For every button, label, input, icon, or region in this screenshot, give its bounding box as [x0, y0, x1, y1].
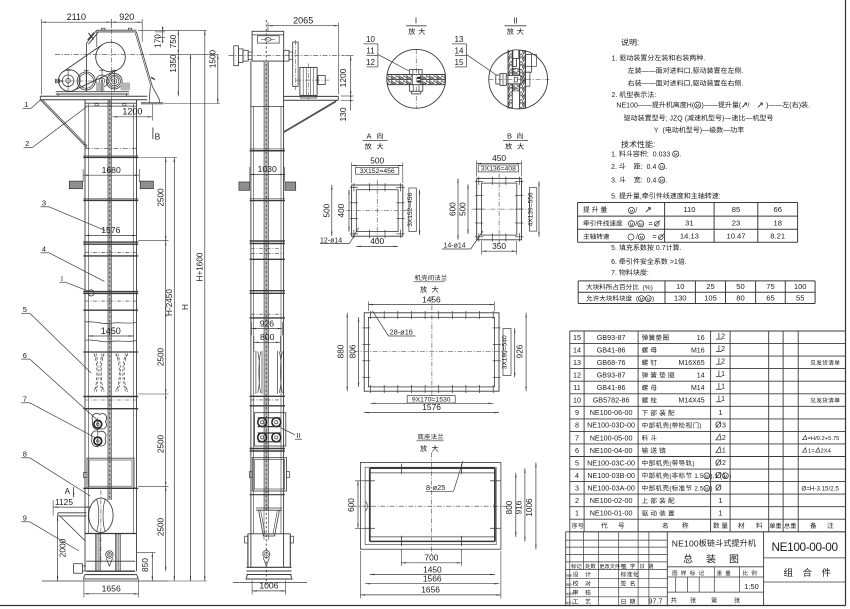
svg-text:18: 18 — [773, 218, 781, 227]
svg-text:2500: 2500 — [156, 517, 165, 536]
svg-text:800: 800 — [260, 332, 275, 342]
svg-text:/: / — [636, 234, 638, 241]
svg-text:3X180=540: 3X180=540 — [502, 335, 509, 369]
svg-text::: : — [637, 38, 639, 47]
svg-text:): ) — [652, 296, 654, 303]
svg-text:GB41-86: GB41-86 — [597, 345, 626, 354]
svg-text:400: 400 — [337, 203, 346, 217]
svg-text:2.: 2. — [611, 164, 619, 171]
svg-text:1456: 1456 — [422, 294, 441, 304]
svg-text:—: — — [723, 127, 730, 134]
svg-text:4X139=556: 4X139=556 — [528, 192, 535, 226]
svg-text:H-2450: H-2450 — [165, 289, 174, 316]
svg-text:1450: 1450 — [101, 326, 121, 336]
svg-text:2: 2 — [25, 139, 29, 148]
svg-text:II: II — [513, 17, 517, 26]
svg-text::: : — [653, 140, 655, 149]
svg-text:NE100-03A-00: NE100-03A-00 — [587, 484, 635, 493]
svg-text:; JZQ (: ; JZQ ( — [666, 115, 688, 122]
svg-text:1680: 1680 — [102, 165, 121, 175]
svg-text:H(: H( — [687, 102, 695, 109]
svg-text:M: M — [674, 152, 678, 157]
svg-text:7: 7 — [23, 395, 27, 404]
svg-text:1006: 1006 — [525, 498, 534, 517]
svg-text:97.7: 97.7 — [649, 597, 663, 606]
svg-text:850: 850 — [140, 558, 150, 572]
svg-text:1350: 1350 — [169, 54, 178, 73]
svg-text:)——: )—— — [702, 102, 718, 109]
svg-text:.: . — [680, 151, 682, 158]
svg-text:14: 14 — [697, 373, 705, 380]
svg-text:8-ø25: 8-ø25 — [426, 483, 445, 492]
svg-text:7: 7 — [575, 433, 579, 442]
svg-text:Ø=H-3.15/2.5: Ø=H-3.15/2.5 — [802, 485, 840, 492]
svg-text:1030: 1030 — [258, 164, 277, 174]
svg-text:M: M — [639, 222, 643, 227]
svg-text:0.7: 0.7 — [656, 245, 666, 252]
svg-text:.: . — [666, 164, 668, 171]
svg-text:14: 14 — [573, 345, 581, 354]
svg-text:): ) — [710, 486, 712, 493]
svg-text:50: 50 — [736, 282, 744, 291]
svg-text:.: . — [685, 259, 687, 266]
svg-text:M: M — [696, 103, 700, 108]
svg-text:2500: 2500 — [156, 188, 165, 207]
svg-text:10: 10 — [573, 396, 581, 405]
svg-text:NE100-00-00: NE100-00-00 — [772, 540, 839, 554]
svg-text:Ø: Ø — [715, 482, 722, 492]
svg-text:2: 2 — [722, 460, 726, 467]
svg-text:11: 11 — [366, 46, 375, 55]
svg-text:M: M — [660, 165, 664, 170]
svg-text:: 0.033: : 0.033 — [647, 151, 672, 158]
svg-text:2: 2 — [575, 496, 579, 505]
svg-text:1.: 1. — [611, 151, 619, 158]
svg-text:): ) — [729, 473, 731, 480]
svg-text:450: 450 — [492, 153, 506, 163]
svg-text:1.: 1. — [612, 55, 620, 62]
svg-text:926: 926 — [515, 344, 524, 358]
svg-text:1: 1 — [722, 447, 726, 454]
svg-text:Ø: Ø — [715, 470, 722, 480]
svg-text:13: 13 — [573, 358, 581, 367]
svg-text:2: 2 — [721, 359, 725, 366]
svg-text:Y (: Y ( — [654, 127, 666, 134]
svg-text:.: . — [742, 68, 744, 75]
svg-text:85: 85 — [732, 205, 740, 214]
svg-text:10: 10 — [366, 35, 375, 44]
svg-text:1: 1 — [24, 100, 28, 109]
svg-text:B: B — [507, 132, 512, 141]
svg-text:——: —— — [642, 81, 656, 88]
svg-text:3: 3 — [42, 199, 46, 208]
svg-text:.: . — [680, 245, 682, 252]
svg-text::: : — [654, 92, 656, 99]
svg-text:800: 800 — [505, 500, 514, 514]
svg-text:): ) — [699, 423, 701, 430]
svg-text:1006: 1006 — [259, 581, 278, 591]
svg-text:.: . — [808, 102, 810, 109]
svg-text:Ø: Ø — [715, 457, 722, 467]
svg-text:23: 23 — [732, 218, 740, 227]
svg-text:16: 16 — [697, 335, 705, 342]
svg-text:M: M — [705, 474, 709, 479]
svg-text:1: 1 — [721, 371, 725, 378]
svg-text:105: 105 — [704, 294, 717, 303]
svg-text:M14X45: M14X45 — [679, 398, 705, 405]
svg-text:9: 9 — [575, 408, 579, 417]
svg-text:1656: 1656 — [102, 584, 121, 594]
svg-text:15: 15 — [455, 58, 464, 67]
svg-text:13: 13 — [455, 35, 464, 44]
svg-text:1576: 1576 — [422, 402, 441, 412]
svg-text:2.: 2. — [612, 92, 620, 99]
svg-text:2065: 2065 — [293, 16, 313, 26]
svg-text:926: 926 — [260, 318, 275, 328]
svg-text:)—: )— — [700, 127, 709, 134]
svg-text:55: 55 — [796, 294, 804, 303]
svg-text:B: B — [155, 132, 161, 142]
svg-text:M: M — [630, 209, 634, 214]
svg-text:500: 500 — [322, 203, 331, 217]
svg-text:880: 880 — [336, 344, 345, 358]
svg-text:M: M — [647, 297, 651, 302]
svg-text:10.47: 10.47 — [726, 232, 745, 241]
svg-text:GB93-87: GB93-87 — [597, 371, 626, 380]
svg-text:7.: 7. — [611, 270, 619, 277]
svg-text:4: 4 — [575, 471, 579, 480]
svg-text:,: , — [691, 81, 693, 88]
svg-text:M: M — [640, 297, 644, 302]
svg-text:1200: 1200 — [122, 107, 142, 117]
svg-text:/: / — [635, 221, 637, 228]
svg-text:75: 75 — [766, 282, 774, 291]
svg-text:.: . — [703, 55, 705, 62]
svg-text:1: 1 — [718, 509, 722, 518]
svg-text:25: 25 — [706, 282, 714, 291]
svg-text:6.: 6. — [611, 259, 619, 266]
svg-text:12: 12 — [573, 371, 581, 380]
svg-text:A: A — [366, 132, 371, 141]
svg-text:/: / — [635, 208, 637, 215]
svg-text:1: 1 — [718, 408, 722, 417]
svg-text:M16X65: M16X65 — [679, 360, 705, 367]
svg-text:10: 10 — [676, 282, 684, 291]
svg-text:15: 15 — [573, 333, 581, 342]
svg-text:600: 600 — [347, 498, 356, 512]
svg-text:9: 9 — [23, 514, 27, 523]
svg-text:2: 2 — [722, 435, 726, 442]
svg-text:700: 700 — [424, 553, 438, 563]
svg-text:1125: 1125 — [55, 497, 73, 507]
svg-text:: 0.4: : 0.4 — [641, 164, 659, 171]
svg-text:/: / — [748, 102, 750, 109]
svg-text:A: A — [65, 487, 71, 496]
svg-text:14: 14 — [455, 46, 464, 55]
svg-text:1=: 1= — [808, 449, 815, 455]
svg-text:1: 1 — [718, 496, 722, 505]
svg-text:: 0.4: : 0.4 — [641, 177, 659, 184]
svg-text:(%): (%) — [643, 284, 653, 291]
svg-text:600: 600 — [449, 202, 458, 216]
svg-text:NE100-04-00: NE100-04-00 — [590, 446, 633, 455]
svg-text:NE100: NE100 — [672, 539, 699, 549]
svg-text:170: 170 — [153, 34, 162, 48]
svg-text:1566: 1566 — [423, 574, 442, 584]
svg-text:NE100-05-00: NE100-05-00 — [590, 433, 633, 442]
svg-text:65: 65 — [766, 294, 774, 303]
svg-text:1.5: 1.5 — [694, 473, 704, 480]
svg-text:Ø: Ø — [715, 420, 722, 430]
svg-text:NE100-03B-00: NE100-03B-00 — [587, 471, 635, 480]
svg-text:NE100-01-00: NE100-01-00 — [590, 509, 633, 518]
svg-text::: : — [647, 270, 649, 277]
svg-text:14-ø14: 14-ø14 — [444, 243, 466, 250]
svg-text:=: = — [653, 234, 657, 241]
svg-text:M: M — [640, 235, 644, 240]
svg-text:11: 11 — [573, 383, 580, 392]
svg-text:NE100-02-00: NE100-02-00 — [590, 496, 633, 505]
svg-text:=H/0.2+5.75: =H/0.2+5.75 — [808, 436, 840, 442]
svg-text:GB68-76: GB68-76 — [597, 358, 626, 367]
svg-text:M14: M14 — [691, 385, 705, 392]
svg-text:3: 3 — [575, 484, 579, 493]
svg-text::: : — [719, 193, 721, 200]
svg-text:130: 130 — [338, 107, 348, 121]
svg-text:GB93-87: GB93-87 — [597, 333, 626, 342]
svg-text:)—: )— — [722, 115, 731, 122]
svg-text:NE100-03C-00: NE100-03C-00 — [587, 458, 635, 467]
svg-text:M: M — [630, 222, 634, 227]
svg-text:M16: M16 — [691, 347, 705, 354]
svg-text:)——: )—— — [766, 102, 782, 109]
svg-text:350: 350 — [492, 241, 506, 251]
svg-text:400: 400 — [370, 236, 384, 246]
svg-text:5.: 5. — [611, 193, 619, 200]
svg-text:H+1600: H+1600 — [196, 252, 205, 281]
svg-text:8.21: 8.21 — [770, 232, 785, 241]
svg-text:14.13: 14.13 — [680, 232, 699, 241]
svg-text:66: 66 — [773, 205, 781, 214]
svg-text:.: . — [666, 177, 668, 184]
svg-text:M: M — [660, 178, 664, 183]
svg-text:8: 8 — [575, 421, 579, 430]
svg-text:3X136=408: 3X136=408 — [481, 166, 516, 173]
svg-text:3.: 3. — [611, 177, 619, 184]
svg-text:H: H — [181, 304, 190, 310]
svg-text:): ) — [799, 102, 801, 109]
svg-text:1200: 1200 — [338, 68, 348, 87]
svg-text:806: 806 — [348, 344, 357, 358]
svg-text:3X152=456: 3X152=456 — [360, 168, 395, 175]
svg-text:2: 2 — [721, 346, 725, 353]
svg-text:GB41-86: GB41-86 — [597, 383, 626, 392]
svg-text:NE100——: NE100—— — [616, 102, 652, 109]
svg-text:>1: >1 — [670, 259, 678, 266]
svg-text:500: 500 — [458, 202, 467, 216]
svg-text:1500: 1500 — [208, 49, 217, 68]
svg-text:1: 1 — [721, 384, 725, 391]
svg-text:2500: 2500 — [156, 434, 165, 453]
svg-text:6: 6 — [23, 351, 27, 360]
svg-text:2500: 2500 — [156, 347, 165, 366]
svg-text:80: 80 — [736, 294, 744, 303]
svg-text:920: 920 — [119, 12, 134, 22]
svg-text:100: 100 — [794, 282, 807, 291]
svg-text:4: 4 — [42, 245, 46, 254]
svg-text:): ) — [692, 460, 694, 467]
svg-text:12: 12 — [366, 58, 375, 67]
svg-text:130: 130 — [674, 294, 687, 303]
svg-text:=: = — [649, 221, 653, 228]
svg-text:,: , — [640, 193, 642, 200]
svg-text:NE100-03D-00: NE100-03D-00 — [587, 421, 635, 430]
svg-text:500: 500 — [370, 155, 384, 165]
svg-text:I: I — [415, 17, 417, 26]
svg-text:2X4: 2X4 — [821, 449, 832, 455]
svg-text:6: 6 — [575, 446, 579, 455]
svg-text:M: M — [705, 486, 709, 491]
svg-text:8: 8 — [23, 450, 27, 459]
svg-text:1656: 1656 — [421, 585, 440, 595]
svg-text:GB5782-86: GB5782-86 — [593, 396, 630, 405]
svg-text:31: 31 — [685, 218, 693, 227]
svg-text:.: . — [742, 81, 744, 88]
svg-text:3X152=456: 3X152=456 — [407, 193, 414, 227]
svg-text:,: , — [691, 68, 693, 75]
svg-text:5: 5 — [575, 458, 579, 467]
svg-text:3: 3 — [722, 423, 726, 430]
svg-text:——: —— — [642, 68, 656, 75]
svg-text:2.5: 2.5 — [694, 486, 704, 493]
svg-text:5.: 5. — [611, 245, 619, 252]
svg-text:28-ø16: 28-ø16 — [390, 328, 413, 337]
svg-text:2: 2 — [721, 334, 725, 341]
svg-text:5: 5 — [23, 305, 27, 314]
svg-text:750: 750 — [169, 34, 178, 48]
svg-text:1: 1 — [575, 509, 579, 518]
svg-text:110: 110 — [683, 205, 695, 214]
svg-text:916: 916 — [514, 500, 523, 514]
svg-text:1:50: 1:50 — [744, 582, 758, 591]
svg-text:1: 1 — [721, 396, 725, 403]
svg-text:1: 1 — [722, 473, 726, 480]
svg-text:—: — — [745, 115, 752, 122]
svg-text:2110: 2110 — [67, 12, 86, 22]
svg-text:NE100-06-00: NE100-06-00 — [590, 408, 633, 417]
